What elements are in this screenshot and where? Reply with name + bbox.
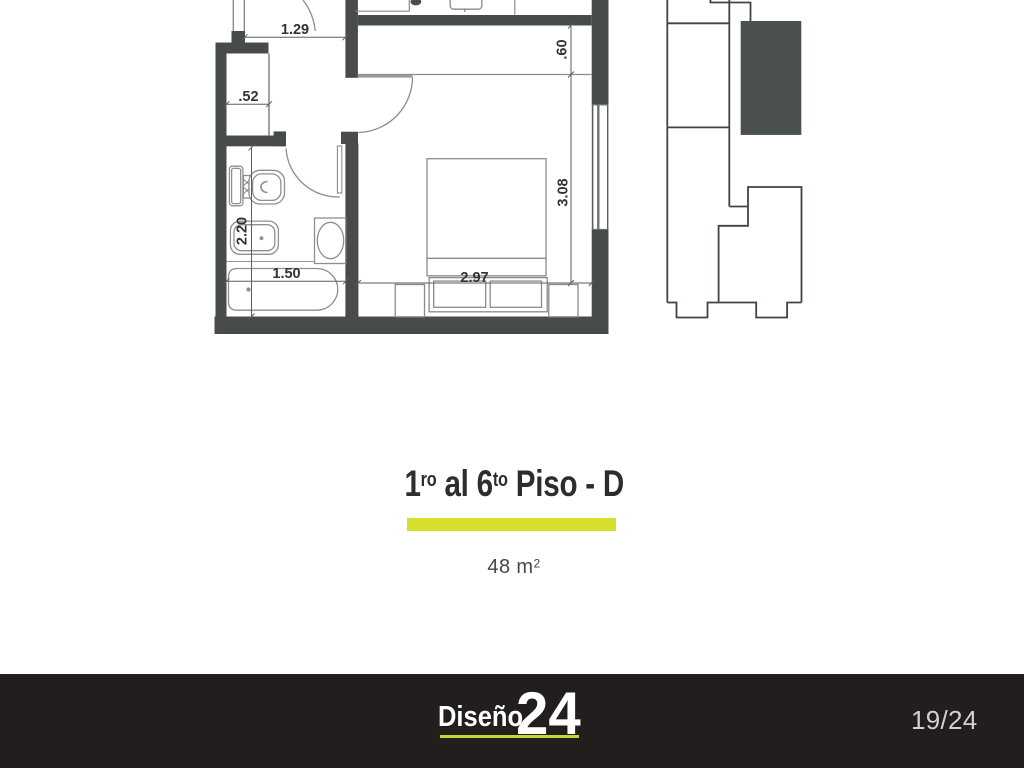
svg-text:2.20: 2.20 [235,217,251,245]
svg-text:2.97: 2.97 [460,270,488,286]
svg-text:1.50: 1.50 [272,266,300,282]
svg-text:.52: .52 [238,89,258,105]
svg-text:3.08: 3.08 [556,178,572,206]
svg-text:.60: .60 [555,39,571,59]
svg-text:1.29: 1.29 [281,22,309,38]
